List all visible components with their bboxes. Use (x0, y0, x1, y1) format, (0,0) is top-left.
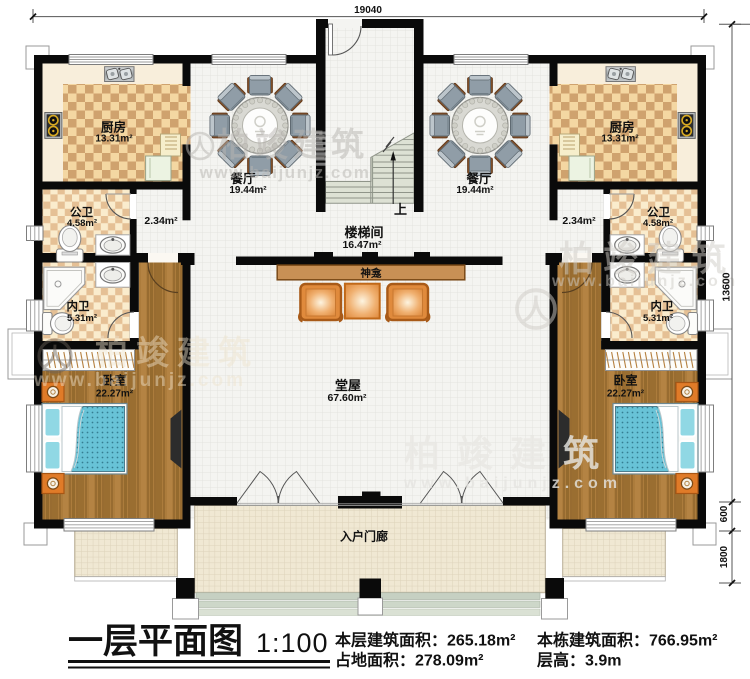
svg-text:www.baijunjz.com: www.baijunjz.com (33, 370, 246, 391)
svg-text:上: 上 (394, 202, 407, 217)
svg-text:www.baijunjz.com: www.baijunjz.com (403, 475, 622, 492)
svg-text:1800: 1800 (719, 545, 730, 568)
svg-text:2.34m²: 2.34m² (562, 215, 596, 227)
svg-text:5.31m²: 5.31m² (643, 313, 673, 324)
svg-text:本栋建筑面积：766.95m²: 本栋建筑面积：766.95m² (537, 631, 718, 650)
svg-text:67.60m²: 67.60m² (327, 392, 367, 404)
svg-text:占地面积：278.09m²: 占地面积：278.09m² (335, 651, 484, 670)
svg-text:2.34m²: 2.34m² (144, 215, 178, 227)
svg-text:层高：3.9m: 层高：3.9m (537, 651, 621, 670)
svg-text:600: 600 (719, 505, 730, 522)
svg-text:5.31m²: 5.31m² (67, 313, 97, 324)
svg-text:人: 人 (43, 344, 67, 371)
svg-text:人: 人 (190, 135, 211, 158)
svg-text:楼梯间: 楼梯间 (344, 225, 383, 240)
svg-text:柏竣建筑: 柏竣建筑 (217, 126, 369, 163)
svg-text:餐厅: 餐厅 (465, 171, 492, 186)
svg-text:堂屋: 堂屋 (335, 378, 361, 393)
svg-text:神龛: 神龛 (361, 266, 382, 279)
svg-text:人: 人 (522, 294, 550, 325)
svg-text:16.47m²: 16.47m² (342, 239, 382, 251)
svg-text:厨房: 厨房 (101, 120, 126, 135)
svg-text:一层平面图: 一层平面图 (68, 622, 243, 661)
svg-text:www.baijunjz.com: www.baijunjz.com (551, 273, 738, 290)
svg-text:1:100: 1:100 (256, 628, 329, 658)
svg-text:入户门廊: 入户门廊 (340, 529, 388, 544)
svg-text:19.44m²: 19.44m² (229, 185, 267, 196)
svg-text:内卫: 内卫 (651, 299, 674, 313)
svg-text:柏竣建筑: 柏竣建筑 (95, 334, 259, 371)
svg-text:4.58m²: 4.58m² (67, 218, 97, 229)
svg-text:本层建筑面积：265.18m²: 本层建筑面积：265.18m² (335, 631, 516, 650)
svg-text:19040: 19040 (354, 5, 382, 16)
svg-text:柏竣建筑: 柏竣建筑 (404, 433, 616, 474)
svg-text:内卫: 内卫 (67, 299, 90, 313)
svg-text:卧室: 卧室 (613, 373, 637, 388)
svg-text:厨房: 厨房 (609, 120, 634, 135)
svg-text:13600: 13600 (721, 272, 733, 301)
svg-text:13.31m²: 13.31m² (95, 134, 133, 145)
svg-text:22.27m²: 22.27m² (607, 389, 645, 400)
svg-text:19.44m²: 19.44m² (456, 185, 494, 196)
svg-text:13.31m²: 13.31m² (601, 134, 639, 145)
svg-text:www.baijunjz.com: www.baijunjz.com (199, 163, 371, 182)
svg-text:4.58m²: 4.58m² (643, 218, 673, 229)
